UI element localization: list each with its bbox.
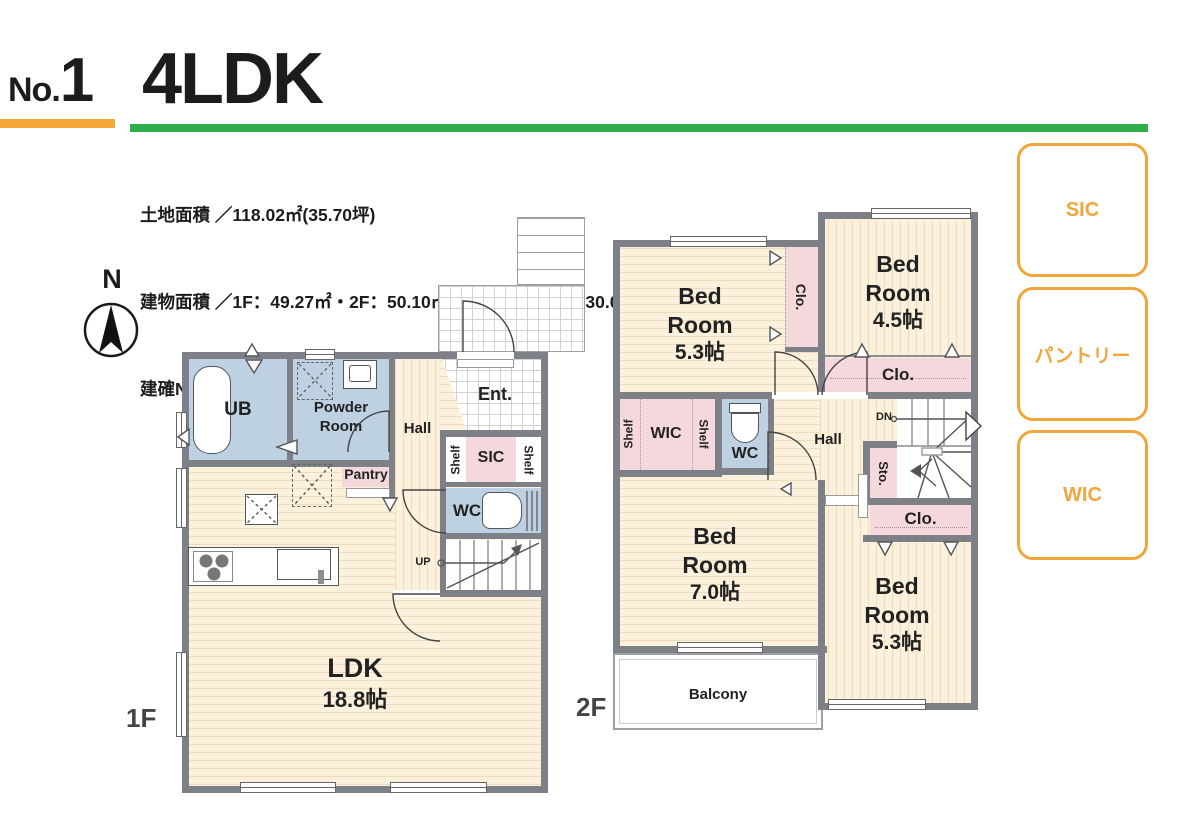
entrance-label: Ent. <box>465 383 525 406</box>
wc-2f-label: WC <box>726 444 764 464</box>
ldk-label: LDK 18.8帖 <box>300 652 410 713</box>
window <box>871 208 971 219</box>
bedroom2-label: Bed Room 4.5帖 <box>850 250 946 334</box>
closet-bottom-label: Clo. <box>870 508 971 529</box>
wall <box>182 786 548 793</box>
window <box>828 699 926 710</box>
legend-box-sic: SIC <box>1017 143 1148 277</box>
legend-pantry-label: パントリー <box>1035 341 1131 368</box>
wall <box>863 498 978 505</box>
legend-wic-label: WIC <box>1063 484 1102 507</box>
ub-label: UB <box>189 398 287 422</box>
entrance-threshold <box>457 359 514 368</box>
stove <box>193 551 233 582</box>
green-underline <box>130 124 1148 132</box>
toilet-1f <box>482 492 522 529</box>
bedroom1-name: Bed Room <box>665 282 735 340</box>
wc-1f-label: WC <box>449 500 485 521</box>
bedroom4-size: 5.3帖 <box>849 630 945 656</box>
wall <box>971 212 978 710</box>
dn-label: DN <box>871 411 897 425</box>
wall <box>722 468 774 475</box>
entry-steps <box>517 217 585 285</box>
wall <box>440 533 548 539</box>
compass-north-label: N <box>96 264 128 295</box>
window <box>390 782 487 793</box>
clo-text: Clo. <box>793 284 809 310</box>
window <box>176 412 187 448</box>
bedroom4-label: Bed Room 5.3帖 <box>849 572 945 656</box>
toilet-tank-2f <box>729 403 761 413</box>
entry-porch <box>438 285 585 352</box>
bedroom2-name: Bed Room <box>863 250 933 308</box>
wall <box>768 398 774 470</box>
shelf-text: Shelf <box>697 419 711 448</box>
hall-2f-label: Hall <box>805 431 851 450</box>
sic-shelf-left-label: Shelf <box>446 437 466 483</box>
wic-shelf-left-label: Shelf <box>618 398 640 470</box>
compass-circle <box>85 304 137 356</box>
vanity-basin <box>349 365 371 382</box>
sliding-door <box>858 474 868 518</box>
sic-label: SIC <box>466 448 516 468</box>
orange-underline <box>0 119 115 128</box>
shelf-text: Shelf <box>449 445 463 474</box>
legend-box-wic: WIC <box>1017 430 1148 560</box>
window <box>305 349 335 360</box>
compass-needle-icon <box>99 305 123 353</box>
bedroom3-label: Bed Room 7.0帖 <box>667 522 763 606</box>
shelf-text: Shelf <box>522 445 536 474</box>
powder-room-label: Powder Room <box>293 399 389 437</box>
refrigerator-space <box>292 464 332 507</box>
ldk-size: 18.8帖 <box>300 686 410 714</box>
floor-2f-label: 2F <box>576 692 606 723</box>
sto-label: Sto. <box>870 448 897 498</box>
wall <box>863 535 978 542</box>
bedroom3-name: Bed Room <box>680 522 750 580</box>
wall <box>440 590 548 597</box>
floor-plan-page: No.1 4LDK 土地面積 ／118.02㎡(35.70坪) 建物面積 ／1F… <box>0 0 1185 815</box>
wic-shelf-right-label: Shelf <box>692 398 715 470</box>
toilet-2f <box>731 413 759 443</box>
floor-1f-label: 1F <box>126 703 156 734</box>
window <box>677 642 763 653</box>
ldk-name: LDK <box>300 652 410 686</box>
wall <box>715 398 722 477</box>
wic-label: WIC <box>640 424 692 444</box>
bedroom2-size: 4.5帖 <box>850 308 946 334</box>
window <box>240 782 336 793</box>
shelf-text: Shelf <box>622 419 636 448</box>
bedroom1-size: 5.3帖 <box>652 340 748 366</box>
closet-45-label: Clo. <box>825 364 971 385</box>
bedroom4-name: Bed Room <box>862 572 932 630</box>
window <box>670 236 767 247</box>
plan-number-value: 1 <box>60 50 94 112</box>
plan-number-prefix: No. <box>8 71 60 110</box>
sto-text: Sto. <box>876 461 891 486</box>
balcony-label: Balcony <box>613 686 823 705</box>
wall <box>440 430 548 437</box>
wall <box>818 212 825 399</box>
pantry-label: Pantry <box>342 466 390 484</box>
faucet <box>318 570 324 584</box>
washing-machine-space <box>297 362 333 400</box>
hall-1f-label: Hall <box>395 420 440 439</box>
stairs-1f <box>446 540 541 590</box>
page-title: 4LDK <box>142 38 322 120</box>
bedroom1-label: Bed Room 5.3帖 <box>652 282 748 366</box>
window <box>176 652 187 737</box>
wall <box>785 347 825 352</box>
up-label: UP <box>410 556 436 570</box>
door-gap <box>393 590 440 597</box>
wall <box>541 352 548 793</box>
legend-box-pantry: パントリー <box>1017 287 1148 421</box>
bedroom3-size: 7.0帖 <box>667 580 763 606</box>
legend-sic-label: SIC <box>1066 199 1099 222</box>
wall <box>818 480 825 710</box>
sic-shelf-right-label: Shelf <box>516 437 541 483</box>
window <box>176 468 187 528</box>
door-gap <box>772 392 868 399</box>
stairs-2f <box>897 399 971 498</box>
wall <box>613 470 722 477</box>
storage-square <box>245 494 278 525</box>
closet-front-line <box>825 355 971 357</box>
plan-number: No.1 <box>8 50 94 112</box>
wall <box>863 441 897 448</box>
pantry-shelf <box>346 488 390 498</box>
closet-top-label: Clo. <box>785 247 818 347</box>
